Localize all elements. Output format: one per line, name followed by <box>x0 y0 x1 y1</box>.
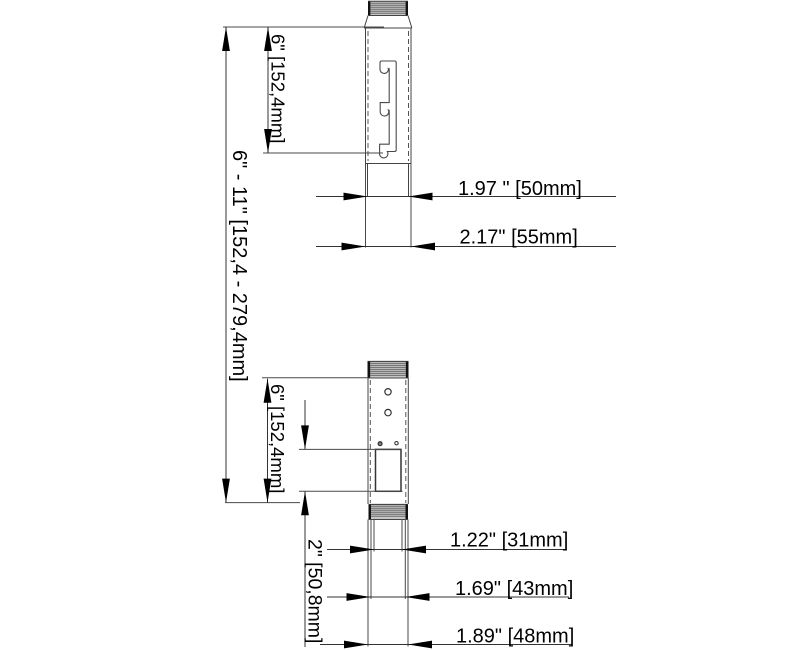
svg-text:1.69" [43mm]: 1.69" [43mm] <box>455 578 573 600</box>
svg-text:1.89" [48mm]: 1.89" [48mm] <box>456 626 574 648</box>
svg-text:1.97 " [50mm]: 1.97 " [50mm] <box>458 178 582 200</box>
svg-text:6" [152,4mm]: 6" [152,4mm] <box>268 34 289 143</box>
svg-text:6" [152,4mm]: 6" [152,4mm] <box>267 384 288 493</box>
svg-text:6" - 11" [152,4 - 279,4mm]: 6" - 11" [152,4 - 279,4mm] <box>228 150 250 382</box>
svg-text:2" [50,8mm]: 2" [50,8mm] <box>304 539 326 643</box>
svg-text:2.17" [55mm]: 2.17" [55mm] <box>460 227 578 249</box>
svg-text:1.22" [31mm]: 1.22" [31mm] <box>450 530 568 552</box>
